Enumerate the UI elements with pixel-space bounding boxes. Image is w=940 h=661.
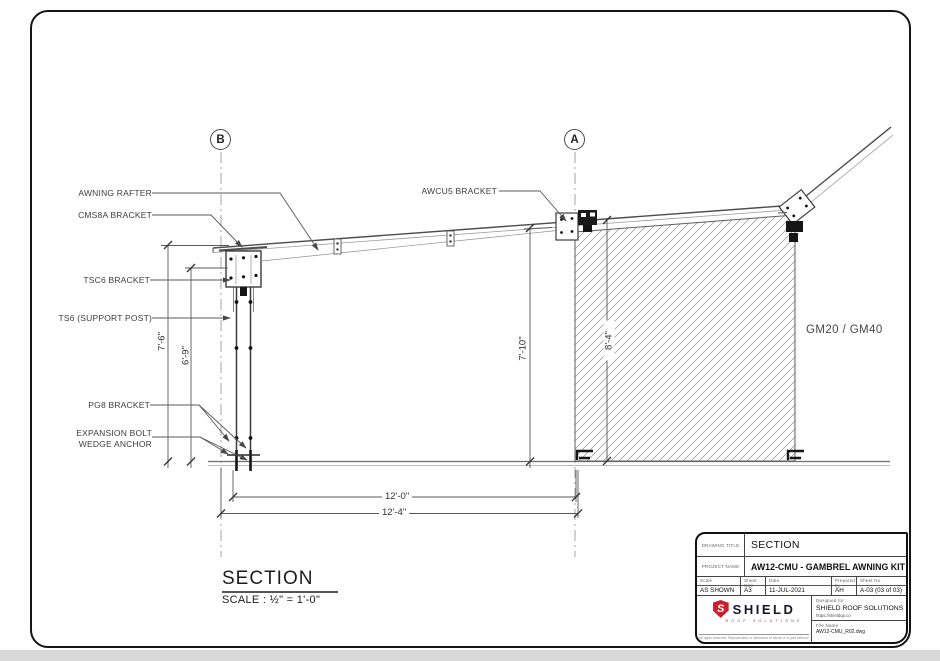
dim-span-clear: 12'-0"	[382, 491, 412, 502]
field-prepared-by-value: AH	[832, 586, 856, 595]
drawing-title-label: DRAWING TITLE	[697, 534, 745, 556]
field-sheet-no-value: A-03 (03 of 03)	[857, 586, 906, 595]
shield-icon-initial: S	[717, 603, 724, 615]
label-expansion-line2: WEDGE ANCHOR	[79, 439, 152, 449]
drawing-sheet: B A AWNING RAFTER CMS8A BRACKET TSC6 BRA…	[0, 0, 940, 661]
label-cms8a-bracket: CMS8A BRACKET	[30, 210, 152, 221]
cms8a-bracket-shape	[219, 247, 267, 296]
grid-letter-a: A	[570, 134, 578, 146]
field-scale-label: Scale	[697, 577, 740, 586]
field-sheet-size-label: Sheet Size	[741, 577, 765, 586]
label-material-gm: GM20 / GM40	[806, 324, 883, 336]
grid-letter-b: B	[216, 134, 224, 146]
label-awning-rafter: AWNING RAFTER	[30, 188, 152, 199]
title-block-row-fields: Scale AS SHOWN Sheet Size A3 Date 11-JUL…	[697, 577, 906, 596]
label-awcu5-bracket: AWCU5 BRACKET	[375, 186, 497, 197]
dim-span-overall: 12'-4"	[379, 507, 409, 518]
field-date: Date 11-JUL-2021	[766, 577, 832, 595]
field-prepared-by-label: Prepared by	[832, 577, 856, 586]
label-pg8-bracket: PG8 BRACKET	[28, 400, 150, 411]
field-date-label: Date	[766, 577, 831, 586]
title-block-row-project-name: PROJECT NAME AW12-CMU - GAMBREL AWNING K…	[697, 557, 906, 577]
file-name-block: File Name : AW12-CMU_R02.dwg	[812, 621, 906, 643]
shield-logo: S SHIELD ROOF SOLUTIONS All rights reser…	[697, 596, 812, 642]
field-sheet-size: Sheet Size A3	[741, 577, 766, 595]
dim-post-height: 7'-6"	[157, 325, 168, 359]
designed-for-label: Designed for :	[816, 598, 906, 603]
view-title: SECTION	[222, 568, 313, 590]
field-scale: Scale AS SHOWN	[697, 577, 741, 595]
label-ts6-support-post: TS6 (SUPPORT POST)	[30, 313, 152, 324]
field-prepared-by: Prepared by AH	[832, 577, 857, 595]
field-sheet-no-label: Sheet No.	[857, 577, 906, 586]
ground-line	[208, 462, 890, 466]
grid-bubble-b: B	[210, 129, 231, 150]
title-block-row-drawing-title: DRAWING TITLE SECTION	[697, 534, 906, 557]
drawing-title-value: SECTION	[745, 534, 906, 556]
designed-for-value: SHIELD ROOF SOLUTIONS	[816, 605, 906, 612]
dim-wall-height: 8'-4"	[604, 321, 615, 361]
field-scale-value: AS SHOWN	[697, 586, 740, 595]
shield-tagline: ROOF SOLUTIONS	[726, 619, 803, 623]
label-tsc6-bracket: TSC6 BRACKET	[28, 275, 150, 286]
title-block: DRAWING TITLE SECTION PROJECT NAME AW12-…	[695, 532, 908, 644]
shield-logo-row: S SHIELD	[713, 600, 796, 618]
support-post	[227, 287, 260, 471]
logo-fine-print: All rights reserved. Reproduction or dis…	[699, 634, 809, 640]
view-title-underline	[222, 591, 338, 593]
shield-icon: S	[713, 600, 729, 618]
website-link: https://shieldup.co	[816, 613, 906, 618]
title-block-row-branding: S SHIELD ROOF SOLUTIONS All rights reser…	[697, 596, 906, 642]
project-name-value: AW12-CMU - GAMBREL AWNING KIT	[745, 557, 906, 576]
field-sheet-no: Sheet No. A-03 (03 of 03)	[857, 577, 906, 595]
file-name-label: File Name :	[816, 623, 906, 628]
grid-bubble-a: A	[564, 129, 585, 150]
label-expansion-line1: EXPANSION BOLT	[76, 428, 152, 438]
shield-wordmark: SHIELD	[733, 602, 796, 617]
dim-post-clear: 6'-9"	[181, 339, 192, 373]
page-bottom-edge	[0, 650, 940, 661]
project-name-label: PROJECT NAME	[697, 557, 745, 576]
dim-wall-front: 7'-10"	[518, 329, 529, 369]
field-date-value: 11-JUL-2021	[766, 586, 831, 595]
file-name-value: AW12-CMU_R02.dwg	[816, 629, 906, 635]
designed-for-block: Designed for : SHIELD ROOF SOLUTIONS htt…	[812, 596, 906, 621]
title-block-right-column: Designed for : SHIELD ROOF SOLUTIONS htt…	[812, 596, 906, 642]
field-sheet-size-value: A3	[741, 586, 765, 595]
view-scale-note: SCALE : ½" = 1'-0"	[222, 594, 320, 606]
label-expansion-bolt: EXPANSION BOLT WEDGE ANCHOR	[30, 428, 152, 450]
